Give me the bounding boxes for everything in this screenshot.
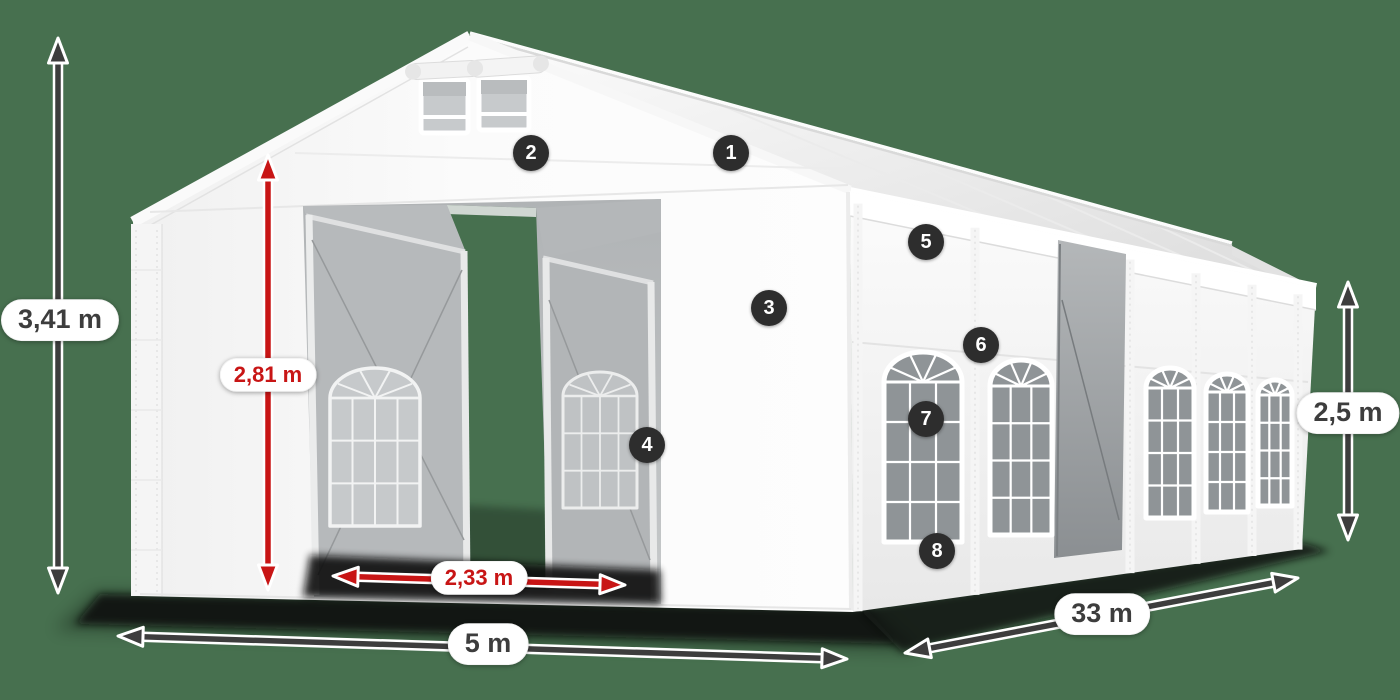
dimension-label-entrance-height: 2,81 m (220, 358, 317, 392)
dimension-label-total-height: 3,41 m (1, 299, 119, 341)
dimension-label-side-height: 2,5 m (1296, 392, 1399, 434)
gable-vents (405, 55, 550, 133)
part-marker-7[interactable]: 7 (908, 401, 944, 437)
part-marker-4[interactable]: 4 (629, 427, 665, 463)
dimension-label-entrance-width: 2,33 m (431, 561, 528, 595)
part-marker-6[interactable]: 6 (963, 327, 999, 363)
part-marker-3[interactable]: 3 (751, 290, 787, 326)
part-marker-8[interactable]: 8 (919, 533, 955, 569)
tent-illustration (0, 0, 1400, 700)
dimension-label-side-length: 33 m (1054, 593, 1150, 635)
front-entrance-opening (303, 199, 661, 604)
dimension-label-front-width: 5 m (448, 623, 529, 665)
part-marker-5[interactable]: 5 (908, 224, 944, 260)
part-marker-1[interactable]: 1 (713, 135, 749, 171)
part-marker-2[interactable]: 2 (513, 135, 549, 171)
tent-diagram-stage: 3,41 m 2,81 m 2,33 m 5 m 33 m 2,5 m 1 2 … (0, 0, 1400, 700)
side-door-opening (1054, 240, 1126, 558)
